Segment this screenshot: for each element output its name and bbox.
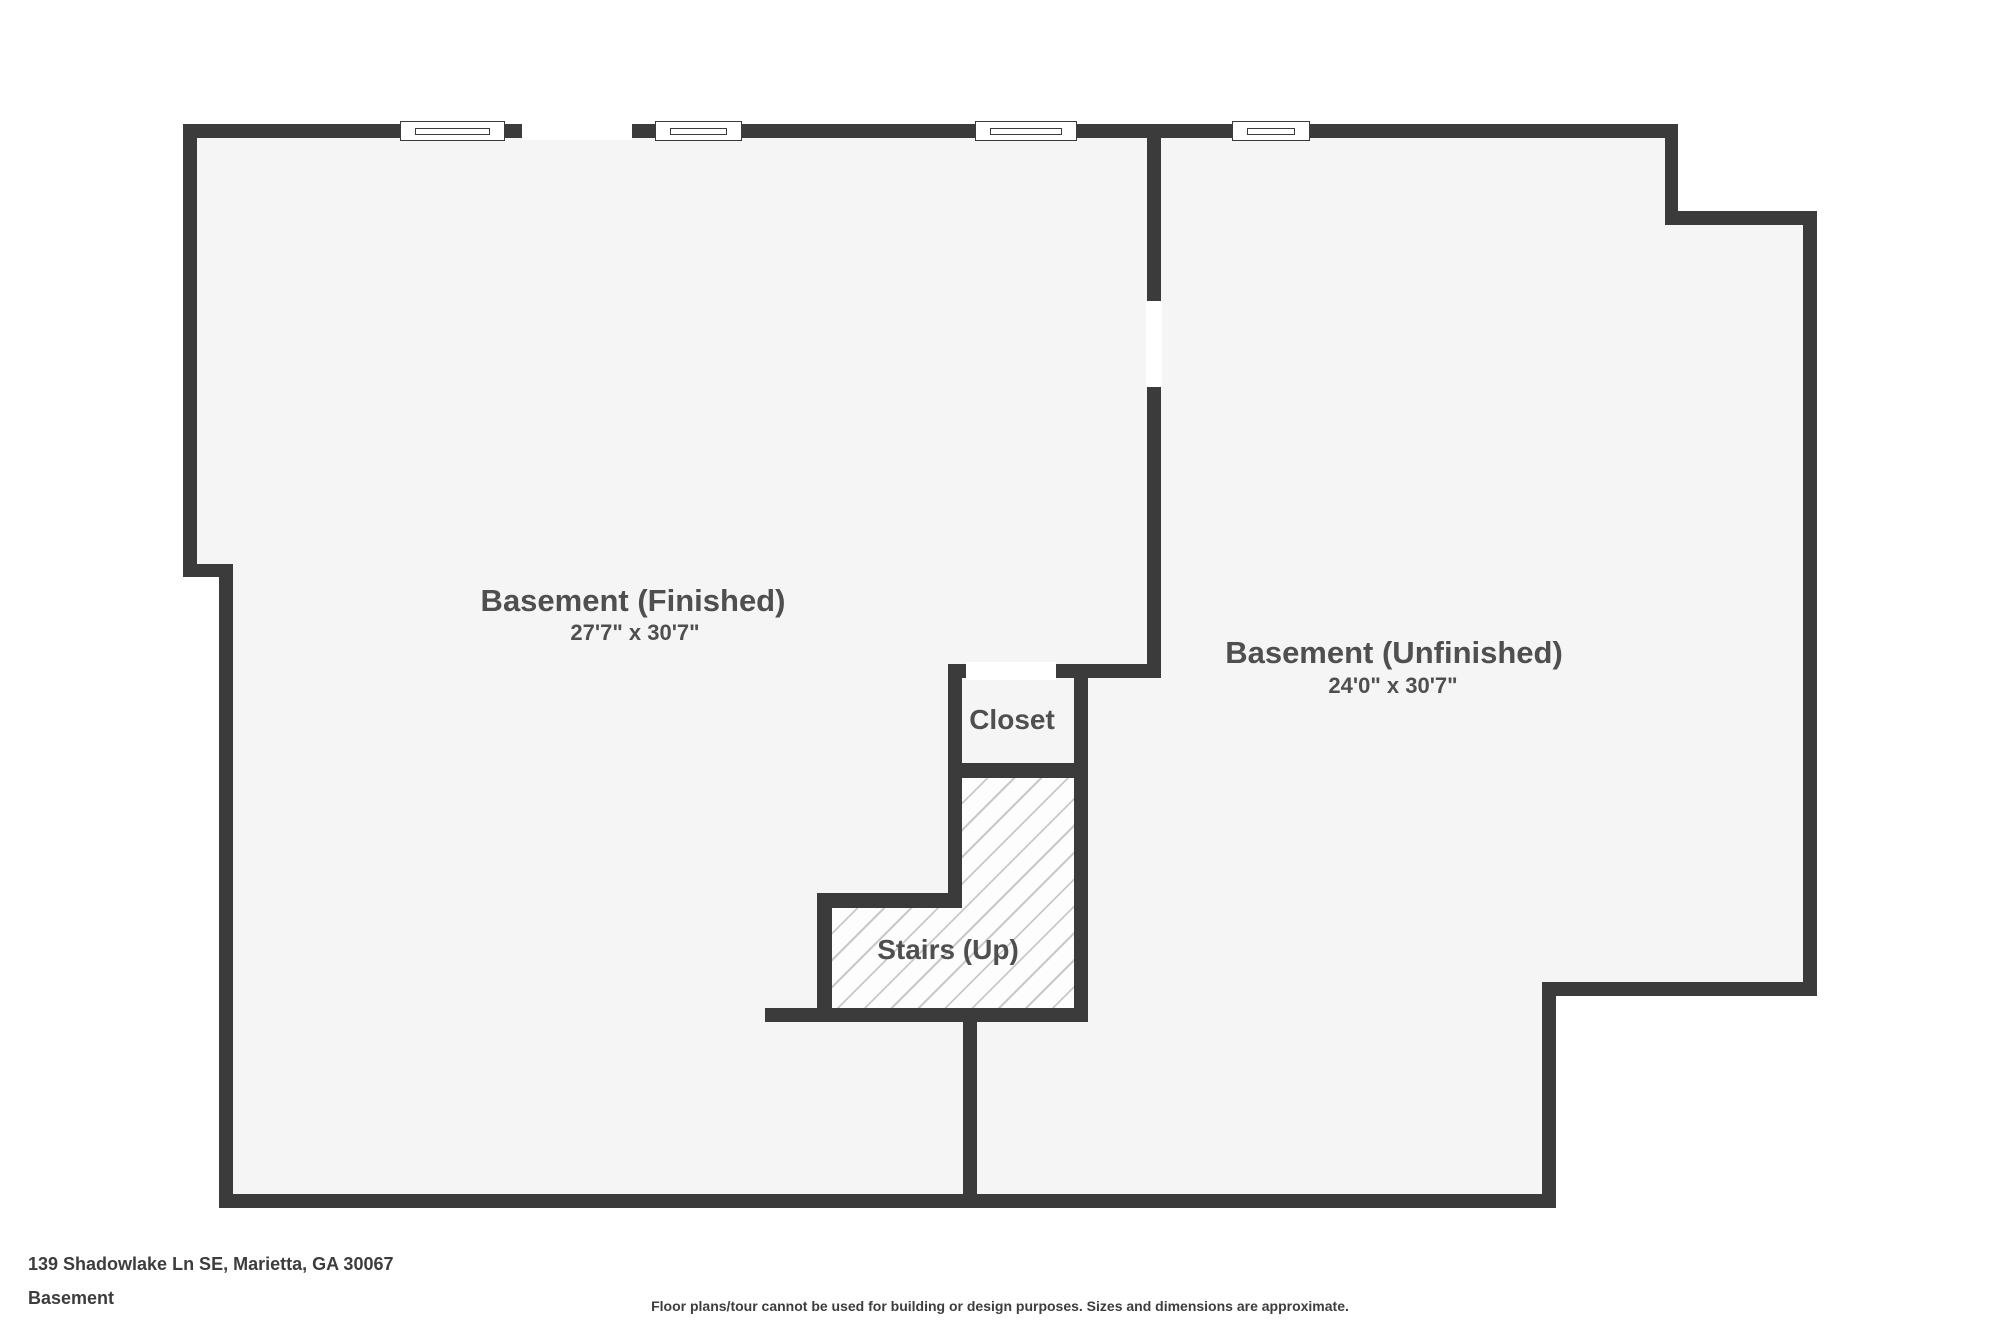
wall-divider-upper [1147, 138, 1161, 303]
floor-level-label: Basement [28, 1288, 114, 1309]
wall-closet-stairs-right [1074, 678, 1088, 1022]
room-label-closet: Closet [969, 704, 1055, 736]
wall-divider-lower [1147, 385, 1161, 678]
wall-closet-left [948, 664, 962, 778]
window-pane-icon [670, 128, 727, 135]
wall-step-out [1665, 211, 1817, 225]
wall-stairs-step [817, 893, 962, 908]
window-icon [400, 121, 505, 141]
floor-plan-page: { "rooms": { "finished": { "name": "Base… [0, 0, 2000, 1333]
wall-stairs-upper-left [948, 778, 962, 908]
floor-area-right-bump [1678, 211, 1817, 577]
room-label-unfinished: Basement (Unfinished) [1225, 635, 1563, 671]
wall-below-stairs-divider [963, 1022, 977, 1194]
window-pane-icon [1247, 128, 1295, 135]
floor-area-right-lower [1556, 577, 1817, 996]
floor-plan: Basement (Finished) 27'7" x 30'7" Baseme… [0, 0, 2000, 1333]
wall-right-outer [1803, 211, 1817, 996]
door-opening-top-wall [522, 122, 632, 140]
window-pane-icon [990, 128, 1062, 135]
floor-area-upper [183, 124, 1678, 577]
wall-left-upper [183, 124, 197, 577]
wall-bottom-right-vertical [1542, 996, 1556, 1208]
wall-step-in [1542, 982, 1817, 996]
window-icon [975, 121, 1077, 141]
wall-stairs-lower-left [817, 893, 832, 1022]
window-icon [655, 121, 742, 141]
property-address: 139 Shadowlake Ln SE, Marietta, GA 30067 [28, 1254, 393, 1275]
room-label-finished: Basement (Finished) [481, 583, 786, 619]
wall-closet-bottom [948, 763, 1088, 778]
window-pane-icon [415, 128, 490, 135]
door-opening-closet [966, 662, 1056, 680]
wall-stairs-bottom [765, 1008, 1088, 1022]
window-icon [1232, 121, 1310, 141]
wall-right-upper [1665, 124, 1678, 225]
stairs-hatch [962, 778, 1074, 1008]
room-dims-unfinished: 24'0" x 30'7" [1328, 673, 1457, 699]
wall-left-lower [219, 564, 233, 1208]
room-dims-finished: 27'7" x 30'7" [570, 620, 699, 646]
door-opening-divider [1146, 301, 1162, 387]
room-label-stairs: Stairs (Up) [877, 934, 1019, 966]
disclaimer-text: Floor plans/tour cannot be used for buil… [651, 1298, 1349, 1314]
wall-bottom [219, 1194, 1556, 1208]
